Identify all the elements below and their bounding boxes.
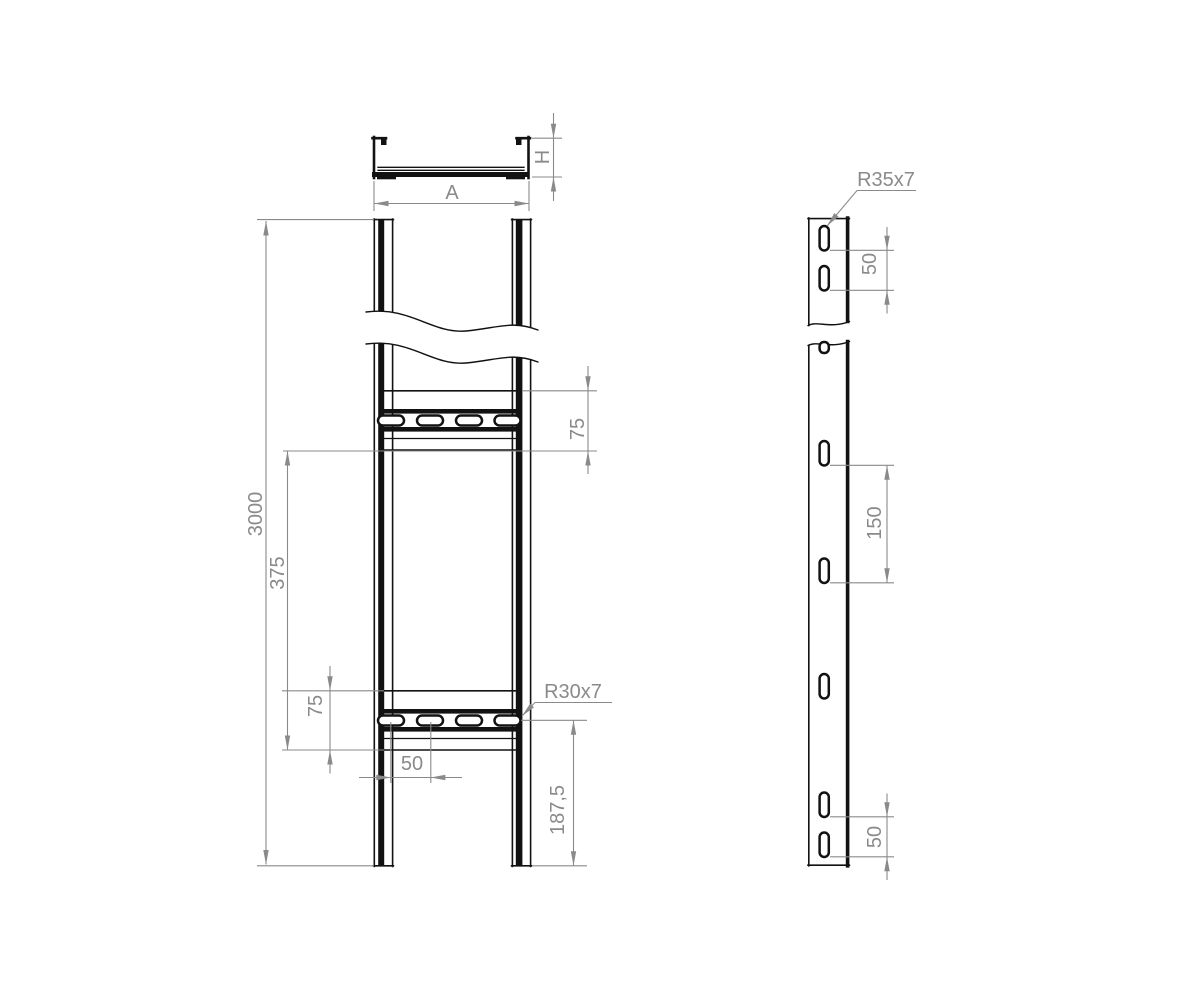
strip-slot: [820, 833, 829, 858]
section-view: [372, 137, 530, 179]
section-base-band: [372, 172, 530, 177]
leader-rung-slot-spec: R30x7: [522, 681, 612, 716]
rung-slot: [417, 416, 443, 426]
dim-total-length-label: 3000: [245, 492, 267, 537]
lower-rung: [378, 691, 521, 750]
dim-side-pitch-mid-label: 150: [864, 506, 886, 539]
rung-slot: [417, 716, 443, 726]
dim-height-label: H: [532, 150, 554, 164]
dim-end-offset-label: 187,5: [547, 785, 569, 835]
cable-ladder-technical-drawing: A H: [0, 0, 1200, 1000]
section-right-foot: [506, 177, 525, 180]
rung-slot: [495, 416, 521, 426]
strip-break-wavy-upper: [808, 322, 850, 326]
leader-line: [827, 191, 916, 227]
rung-band-lower: [382, 727, 521, 732]
section-left-foot: [377, 177, 396, 180]
strip-slot: [820, 674, 829, 699]
dim-side-pitch-mid: 150: [830, 465, 894, 583]
dim-width-A: A: [374, 181, 529, 211]
rung-slot: [456, 416, 482, 426]
dim-slot-pitch-front-label: 50: [401, 753, 423, 775]
rung-band-lower: [382, 427, 521, 432]
leader-line: [522, 703, 612, 717]
right-side-rail: [512, 219, 532, 867]
dim-side-pitch-top-label: 50: [859, 253, 881, 275]
leader-side-slot-spec: R35x7: [827, 169, 916, 226]
dim-rung-height-upper-label: 75: [567, 418, 589, 440]
dim-side-pitch-top: 50: [830, 227, 894, 314]
strip-slot: [820, 226, 829, 251]
strip-slot: [820, 266, 829, 291]
strip-slot: [820, 793, 829, 818]
upper-rung: [378, 391, 521, 450]
strip-slot: [820, 441, 829, 466]
dim-height-H: H: [532, 113, 562, 201]
rung-band-upper: [382, 409, 521, 414]
strip-slot-partial: [820, 342, 829, 353]
dim-rung-height-lower-label: 75: [305, 695, 327, 717]
front-view: [366, 219, 538, 867]
dim-side-pitch-bottom: 50: [830, 794, 894, 881]
side-slot-spec-label: R35x7: [857, 169, 915, 191]
rung-slot-spec-label: R30x7: [544, 681, 602, 703]
rung-slot: [378, 416, 404, 426]
dim-rung-height-upper: 75: [522, 366, 597, 474]
dim-total-length: 3000: [245, 220, 374, 866]
dim-rung-pitch-label: 375: [267, 556, 289, 589]
dim-side-pitch-bottom-label: 50: [864, 826, 886, 848]
rung-slot: [456, 716, 482, 726]
section-left-lip: [381, 137, 387, 145]
drawing-canvas: A H: [0, 0, 1200, 1000]
rail-flange-band: [516, 219, 523, 867]
section-right-lip: [516, 137, 522, 145]
strip-slot: [820, 559, 829, 584]
rung-slot: [495, 716, 521, 726]
side-view: [808, 218, 850, 866]
rung-band-upper: [382, 709, 521, 714]
dim-rung-height-lower: 75: [282, 666, 384, 774]
dim-width-label: A: [445, 182, 459, 204]
